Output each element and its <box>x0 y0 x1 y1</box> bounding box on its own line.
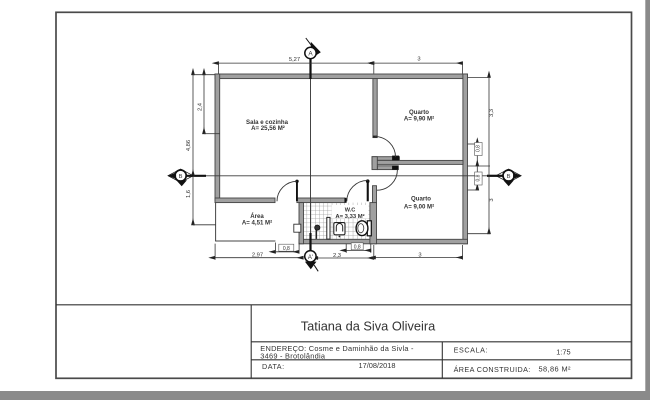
svg-text:3,3: 3,3 <box>489 109 495 117</box>
svg-text:ESCALA:: ESCALA: <box>454 345 489 354</box>
svg-text:58,86 M²: 58,86 M² <box>539 365 572 374</box>
svg-text:A': A' <box>308 255 313 261</box>
svg-text:5,27: 5,27 <box>289 57 300 63</box>
svg-text:2,3: 2,3 <box>333 253 341 259</box>
svg-text:2,97: 2,97 <box>252 252 263 258</box>
svg-text:B: B <box>507 174 511 180</box>
svg-text:0,8: 0,8 <box>476 145 482 152</box>
svg-text:1:75: 1:75 <box>556 347 570 356</box>
svg-text:0,8: 0,8 <box>354 244 361 250</box>
svg-text:A= 25,56 M²: A= 25,56 M² <box>251 125 285 132</box>
svg-text:3469 - Brotolândia: 3469 - Brotolândia <box>260 351 326 360</box>
svg-text:17/08/2018: 17/08/2018 <box>359 361 396 370</box>
svg-text:2,4: 2,4 <box>197 102 203 111</box>
svg-text:Quarto: Quarto <box>411 196 431 203</box>
svg-text:Tatiana da Siva Oliveira: Tatiana da Siva Oliveira <box>301 319 436 334</box>
svg-text:W.C: W.C <box>345 208 356 214</box>
svg-text:A= 3,33 M²: A= 3,33 M² <box>335 213 364 220</box>
svg-text:A= 9,00 M²: A= 9,00 M² <box>404 204 434 211</box>
svg-text:4,86: 4,86 <box>186 140 192 151</box>
svg-text:DATA:: DATA: <box>262 362 285 371</box>
svg-text:0,8: 0,8 <box>476 174 482 181</box>
svg-text:A= 4,51 M²: A= 4,51 M² <box>242 220 272 227</box>
svg-text:ÁREA CONSTRUIDA:: ÁREA CONSTRUIDA: <box>454 365 531 374</box>
svg-text:1,6: 1,6 <box>186 190 192 198</box>
svg-text:A= 9,90 M²: A= 9,90 M² <box>404 116 434 123</box>
svg-text:3: 3 <box>417 57 420 63</box>
svg-text:3: 3 <box>418 252 421 258</box>
svg-text:3: 3 <box>489 198 495 201</box>
svg-text:A: A <box>308 51 313 58</box>
svg-text:0,8: 0,8 <box>283 246 290 252</box>
svg-text:B: B <box>179 174 183 180</box>
